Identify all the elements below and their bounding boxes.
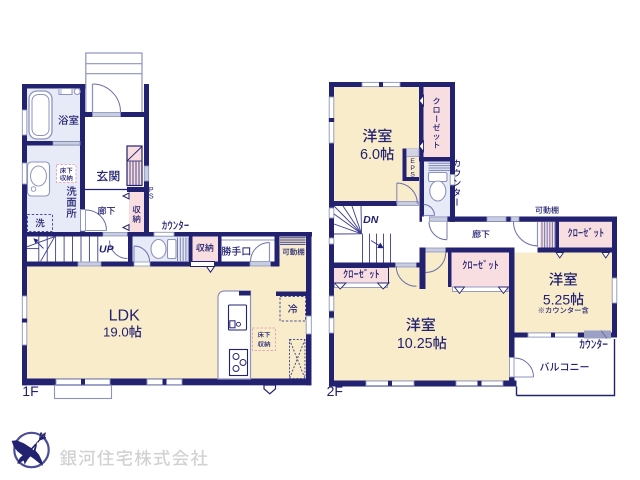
svg-text:19.0: 19.0: [103, 325, 129, 340]
svg-text:5.25: 5.25: [543, 291, 570, 307]
svg-text:2F: 2F: [327, 383, 343, 399]
svg-text:LDK: LDK: [109, 308, 140, 325]
svg-text:N: N: [39, 431, 47, 442]
svg-text:6.0: 6.0: [360, 147, 380, 163]
svg-text:S: S: [149, 194, 154, 201]
svg-text:10.25: 10.25: [397, 336, 433, 352]
svg-text:S: S: [410, 172, 415, 179]
svg-text:DN: DN: [363, 214, 379, 226]
svg-text:1F: 1F: [22, 383, 38, 399]
svg-text:UP: UP: [99, 243, 115, 255]
